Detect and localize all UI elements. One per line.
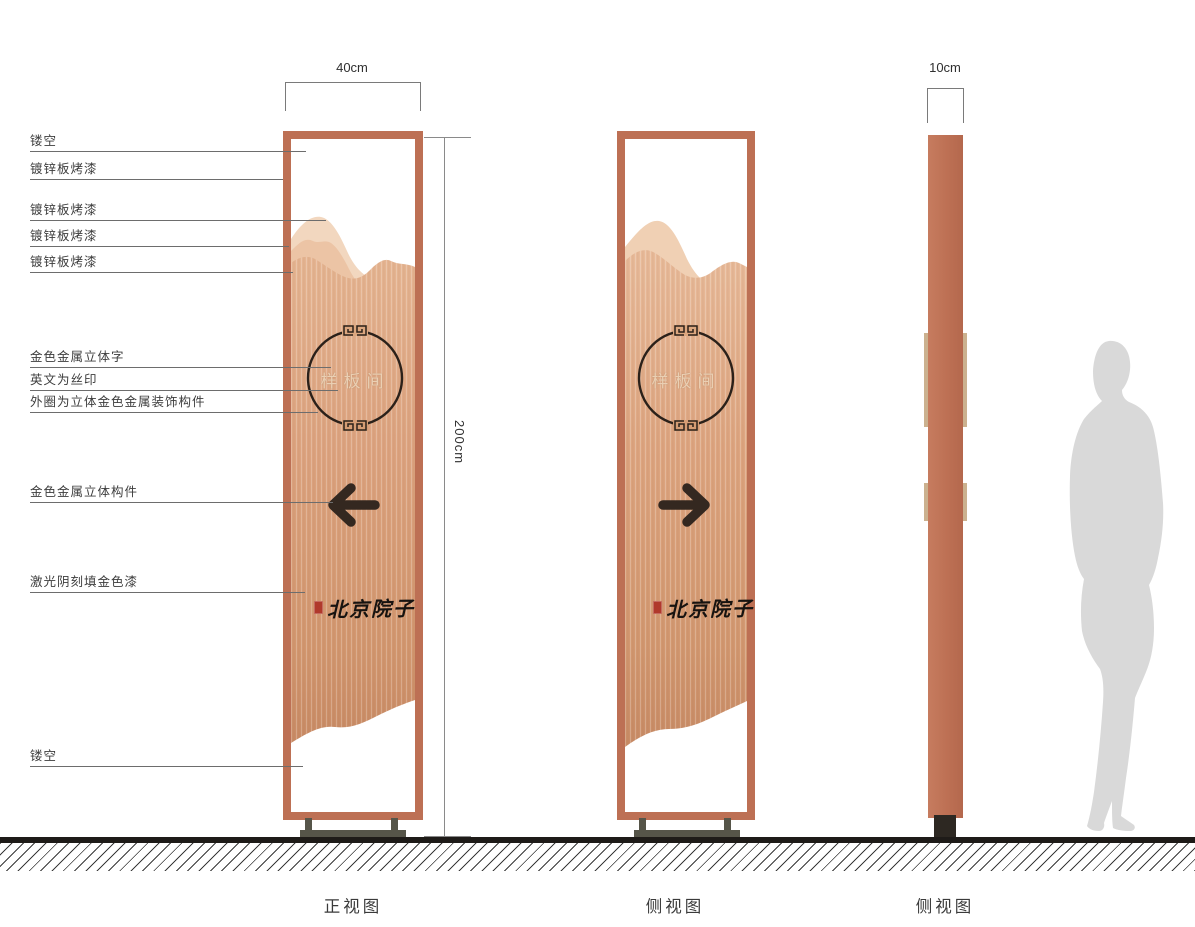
callout-label: 英文为丝印 [30, 373, 338, 387]
callout-label: 镀锌板烤漆 [30, 203, 326, 217]
callout-label: 镂空 [30, 134, 306, 148]
callout-hollow-bottom: 镂空 [30, 749, 303, 767]
brand-name-text: 北京院子 [326, 592, 414, 623]
back-panel-graphic [625, 139, 747, 812]
leader-line [30, 390, 338, 391]
callout-label: 激光阴刻填金色漆 [30, 575, 305, 589]
callout-label: 镀锌板烤漆 [30, 162, 283, 176]
callout-galvanized-1: 镀锌板烤漆 [30, 162, 283, 180]
side-profile-panel [928, 135, 963, 818]
leader-line [30, 151, 306, 152]
dimension-tick-top [424, 137, 471, 138]
callout-silkscreen: 英文为丝印 [30, 373, 338, 391]
brand-calligraphy-front: 北京院子 [304, 593, 424, 622]
leader-line [30, 272, 293, 273]
callout-label: 外圈为立体金色金属装饰构件 [30, 395, 318, 409]
front-view-panel [283, 131, 423, 820]
dimension-bracket-40cm [285, 82, 421, 111]
seal-icon [314, 601, 323, 614]
design-canvas: 镂空 镀锌板烤漆 镀锌板烤漆 镀锌板烤漆 镀锌板烤漆 金色金属立体字 英文为丝印… [0, 0, 1195, 927]
callout-label: 镂空 [30, 749, 303, 763]
leader-line [30, 179, 283, 180]
callout-laser-engrave: 激光阴刻填金色漆 [30, 575, 305, 593]
leader-line [30, 367, 331, 368]
ground-hatch [0, 843, 1195, 871]
back-view-panel [617, 131, 755, 820]
leader-line [30, 246, 289, 247]
dimension-200cm: 200cm [452, 420, 467, 464]
callout-galvanized-4: 镀锌板烤漆 [30, 255, 293, 273]
callout-galvanized-3: 镀锌板烤漆 [30, 229, 289, 247]
caption-side-view-2: 侧视图 [890, 893, 1000, 917]
callout-label: 金色金属立体字 [30, 350, 331, 364]
callout-gold-letters: 金色金属立体字 [30, 350, 331, 368]
seal-icon [653, 601, 662, 614]
human-silhouette [1035, 338, 1185, 838]
leader-line [30, 766, 303, 767]
leader-line [30, 412, 318, 413]
callout-galvanized-2: 镀锌板烤漆 [30, 203, 326, 221]
dimension-line-200cm [444, 137, 445, 838]
callout-label: 镀锌板烤漆 [30, 229, 289, 243]
room-name-label-back: 样板间 [631, 367, 741, 392]
callout-label: 镀锌板烤漆 [30, 255, 293, 269]
leader-line [30, 502, 333, 503]
caption-front-view: 正视图 [298, 893, 408, 917]
callout-outer-ring: 外圈为立体金色金属装饰构件 [30, 395, 318, 413]
dimension-40cm: 40cm [322, 60, 382, 75]
callout-gold-component: 金色金属立体构件 [30, 485, 333, 503]
callout-label: 金色金属立体构件 [30, 485, 333, 499]
leader-line [30, 220, 326, 221]
caption-side-view-1: 侧视图 [620, 893, 730, 917]
leader-line [30, 592, 305, 593]
dimension-10cm: 10cm [915, 60, 975, 75]
brand-name-text: 北京院子 [665, 592, 753, 623]
dimension-bracket-10cm [927, 88, 964, 123]
callout-hollow-top: 镂空 [30, 134, 306, 152]
brand-calligraphy-back: 北京院子 [643, 593, 763, 622]
front-panel-graphic [291, 139, 415, 812]
